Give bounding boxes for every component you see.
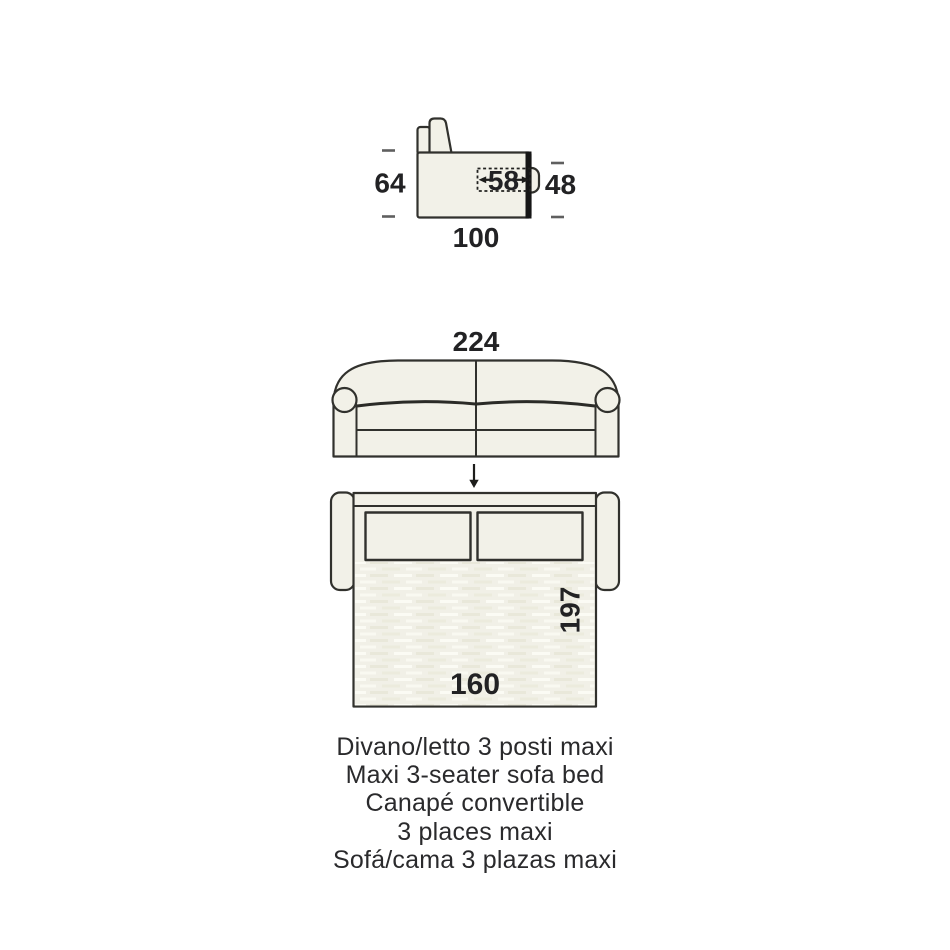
bed-armrest-right — [596, 493, 620, 591]
seat-depth-label: 58 — [488, 165, 519, 196]
front-view: 224 — [333, 326, 620, 457]
arm-roll-left — [333, 388, 357, 412]
overall-height-label: 64 — [374, 168, 406, 199]
side-backrest — [430, 119, 452, 154]
bed-back-cushion-left — [366, 513, 471, 561]
open-arrow — [469, 464, 478, 488]
product-caption: Divano/letto 3 posti maxi Maxi 3-seater … — [0, 733, 950, 874]
side-armrest — [418, 127, 431, 155]
bed-view: 197 160 — [331, 493, 619, 707]
overall-depth-label: 100 — [453, 222, 500, 253]
caption-line-french-2: 3 places maxi — [0, 818, 950, 846]
arm-roll-right — [596, 388, 620, 412]
sofa-dimension-sheet: 58 64 48 100 224 — [0, 0, 950, 950]
mattress-length-label: 197 — [555, 587, 586, 634]
bed-back-cushion-right — [478, 513, 583, 561]
caption-line-italian: Divano/letto 3 posti maxi — [0, 733, 950, 761]
bed-armrest-left — [331, 493, 355, 591]
side-view: 58 64 48 100 — [374, 119, 576, 254]
overall-width-label: 224 — [453, 326, 500, 357]
open-arrow-head — [469, 480, 478, 488]
mattress-width-label: 160 — [450, 668, 500, 701]
caption-line-spanish: Sofá/cama 3 plazas maxi — [0, 846, 950, 874]
caption-line-english: Maxi 3-seater sofa bed — [0, 761, 950, 789]
caption-line-french-1: Canapé convertible — [0, 789, 950, 817]
seat-height-label: 48 — [545, 169, 576, 200]
